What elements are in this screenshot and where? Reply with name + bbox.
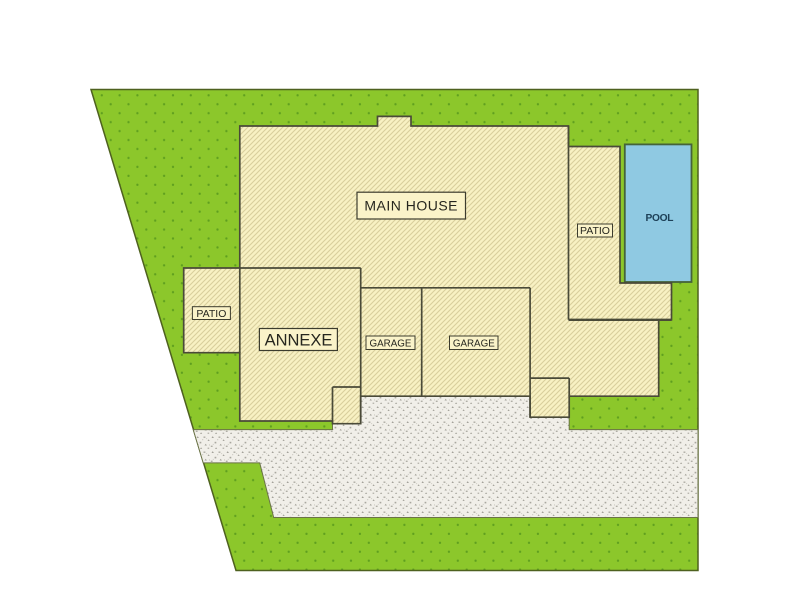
svg-text:GARAGE: GARAGE bbox=[453, 338, 495, 349]
svg-text:MAIN HOUSE: MAIN HOUSE bbox=[364, 197, 458, 213]
svg-text:PATIO: PATIO bbox=[196, 308, 226, 320]
svg-text:PATIO: PATIO bbox=[580, 225, 610, 237]
svg-text:ANNEXE: ANNEXE bbox=[265, 331, 333, 349]
svg-text:POOL: POOL bbox=[645, 213, 673, 224]
svg-text:GARAGE: GARAGE bbox=[370, 338, 412, 349]
